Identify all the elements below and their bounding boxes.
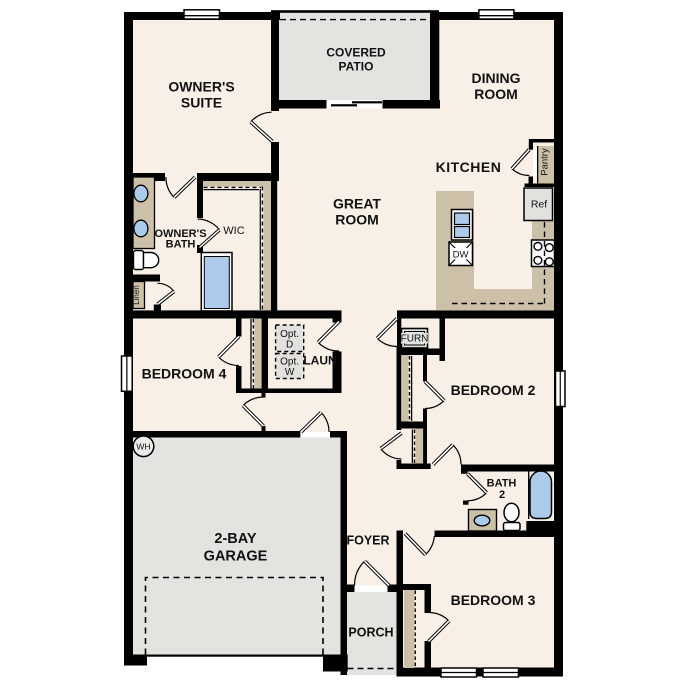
svg-text:PORCH: PORCH	[348, 626, 393, 640]
svg-text:BATH: BATH	[487, 478, 517, 490]
svg-text:Pantry: Pantry	[540, 148, 551, 176]
svg-text:Opt.: Opt.	[280, 357, 299, 368]
svg-text:OWNER'S: OWNER'S	[168, 79, 234, 95]
svg-text:Linen: Linen	[132, 285, 141, 305]
svg-text:ROOM: ROOM	[474, 86, 518, 102]
svg-text:BEDROOM 4: BEDROOM 4	[142, 366, 227, 382]
svg-text:WH: WH	[136, 442, 150, 452]
svg-text:WIC: WIC	[223, 225, 244, 237]
svg-text:FURN: FURN	[401, 334, 429, 345]
svg-text:2-BAY: 2-BAY	[214, 531, 257, 547]
svg-text:FOYER: FOYER	[346, 534, 389, 548]
svg-text:DW: DW	[453, 250, 469, 261]
svg-text:BEDROOM 3: BEDROOM 3	[451, 592, 536, 608]
svg-text:BEDROOM 2: BEDROOM 2	[451, 382, 536, 398]
svg-text:PATIO: PATIO	[339, 60, 374, 74]
svg-text:Ref: Ref	[531, 199, 547, 211]
svg-text:LAUN: LAUN	[303, 354, 336, 368]
svg-text:ROOM: ROOM	[335, 212, 379, 228]
svg-text:DINING: DINING	[472, 70, 521, 86]
svg-text:COVERED: COVERED	[326, 46, 386, 60]
svg-text:GARAGE: GARAGE	[204, 549, 268, 565]
svg-text:Opt.: Opt.	[280, 329, 299, 340]
svg-text:2: 2	[499, 489, 505, 501]
svg-text:D: D	[286, 340, 293, 351]
svg-text:SUITE: SUITE	[181, 95, 222, 111]
svg-text:W: W	[285, 367, 295, 378]
svg-text:KITCHEN: KITCHEN	[436, 159, 502, 175]
svg-text:BATH: BATH	[166, 239, 196, 251]
svg-text:GREAT: GREAT	[333, 196, 381, 212]
